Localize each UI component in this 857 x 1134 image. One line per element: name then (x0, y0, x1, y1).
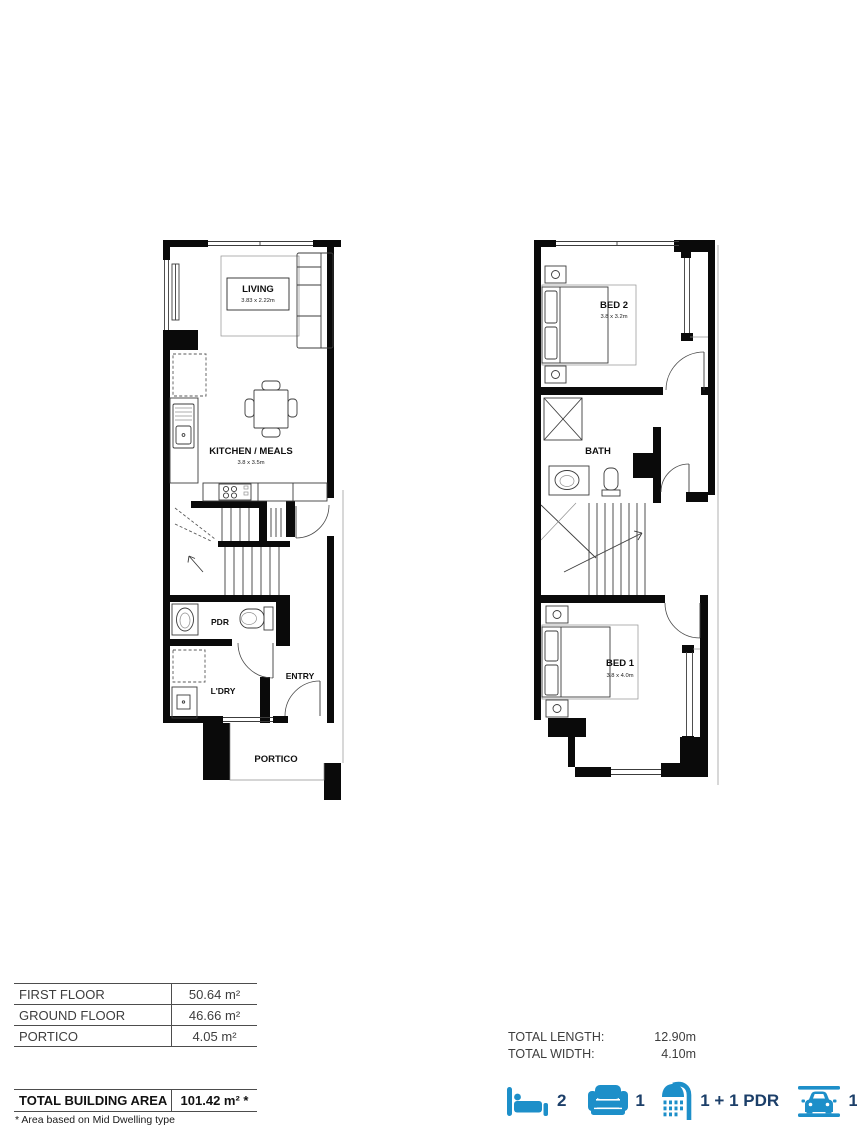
entry-door (285, 681, 320, 716)
portico-label: PORTICO (254, 754, 297, 765)
living-areas-feature: 1 (588, 1085, 644, 1117)
living-label: LIVING (242, 284, 274, 295)
entry-label: ENTRY (286, 671, 315, 681)
kitchen-meals-label: KITCHEN / MEALS (209, 446, 292, 457)
living-dims: 3.83 x 2.22m (241, 298, 275, 304)
area-row-label: PORTICO (14, 1026, 172, 1046)
area-row-value: 4.05 m² (172, 1029, 257, 1044)
bed2-robe (685, 258, 709, 337)
bath-fixtures (544, 398, 689, 496)
bedrooms-feature: 2 (506, 1086, 566, 1117)
ldry-label: L'DRY (211, 686, 236, 696)
area-row-value: 46.66 m² (172, 1008, 257, 1023)
total-length-value: 12.90m (654, 1030, 696, 1044)
bed2-furniture (542, 266, 704, 390)
table-row: FIRST FLOOR 50.64 m² (14, 984, 257, 1005)
first-floor-plan: BED 2 3.8 x 3.2m BATH BED 1 3.8 x 4.0m (534, 240, 720, 800)
garage-feature: 1 (796, 1086, 857, 1117)
armchair-icon (588, 1085, 628, 1117)
bed-icon (506, 1086, 550, 1117)
kitchen-furniture (170, 354, 327, 501)
portico-outline (230, 723, 324, 780)
bed1-dims: 3.8 x 4.0m (606, 673, 633, 679)
total-building-area-row: TOTAL BUILDING AREA 101.42 m² * (14, 1089, 257, 1112)
bed2-label: BED 2 (600, 300, 628, 311)
area-row-label: FIRST FLOOR (14, 984, 172, 1004)
living-areas-count: 1 (635, 1091, 644, 1111)
table-row: PORTICO 4.05 m² (14, 1026, 257, 1047)
shower-icon (660, 1081, 693, 1121)
first-stairs (541, 503, 645, 595)
area-table: FIRST FLOOR 50.64 m² GROUND FLOOR 46.66 … (14, 983, 257, 1047)
area-footnote: * Area based on Mid Dwelling type (15, 1114, 175, 1126)
total-width-label: TOTAL WIDTH: (508, 1047, 595, 1061)
bathrooms-feature: 1 + 1 PDR (660, 1081, 779, 1121)
total-width-value: 4.10m (661, 1047, 696, 1061)
ground-walls (163, 240, 341, 800)
garage-count: 1 (849, 1091, 857, 1111)
bed1-furniture (542, 603, 700, 736)
bed2-dims: 3.8 x 3.2m (600, 314, 627, 320)
total-width-row: TOTAL WIDTH: 4.10m (508, 1045, 696, 1062)
total-area-label: TOTAL BUILDING AREA (14, 1090, 172, 1111)
area-row-label: GROUND FLOOR (14, 1005, 172, 1025)
bathrooms-count: 1 + 1 PDR (700, 1091, 779, 1111)
ground-floor-plan: LIVING 3.83 x 2.22m KITCHEN / MEALS 3.8 … (163, 240, 345, 800)
feature-summary: 2 1 1 + 1 PDR (506, 1082, 857, 1120)
table-row: GROUND FLOOR 46.66 m² (14, 1005, 257, 1026)
pdr-label: PDR (211, 617, 229, 627)
bath-label: BATH (585, 446, 611, 457)
area-row-value: 50.64 m² (172, 987, 257, 1002)
bed1-label: BED 1 (606, 658, 635, 669)
ground-stairs (175, 505, 329, 595)
total-area-value: 101.42 m² * (172, 1093, 257, 1108)
bedrooms-count: 2 (557, 1091, 566, 1111)
overall-dimensions: TOTAL LENGTH: 12.90m TOTAL WIDTH: 4.10m (508, 1028, 696, 1062)
car-icon (796, 1086, 842, 1117)
laundry-fixtures (172, 650, 205, 718)
total-length-row: TOTAL LENGTH: 12.90m (508, 1028, 696, 1045)
total-length-label: TOTAL LENGTH: (508, 1030, 604, 1044)
kitchen-meals-dims: 3.8 x 3.5m (237, 460, 264, 466)
